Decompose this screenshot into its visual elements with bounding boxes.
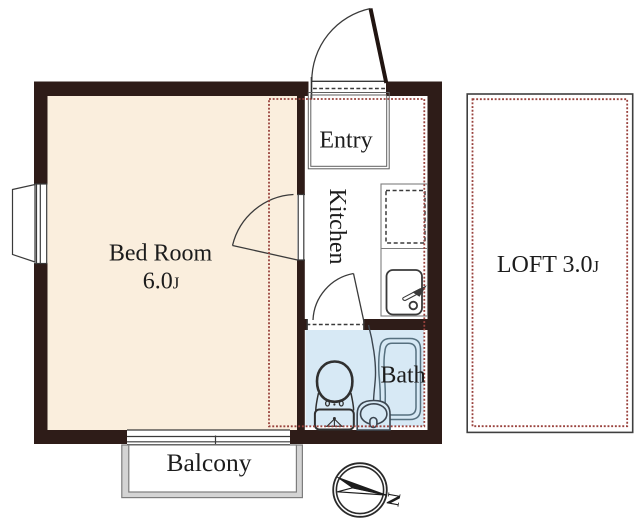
svg-text:Balcony: Balcony [167,448,252,477]
svg-text:LOFT 3.0J: LOFT 3.0J [497,252,600,278]
svg-text:Kitchen: Kitchen [324,189,350,265]
svg-text:Entry: Entry [319,128,372,154]
svg-text:N: N [381,491,403,508]
svg-text:Bed Room: Bed Room [109,241,213,267]
svg-text:Bath: Bath [380,363,425,389]
